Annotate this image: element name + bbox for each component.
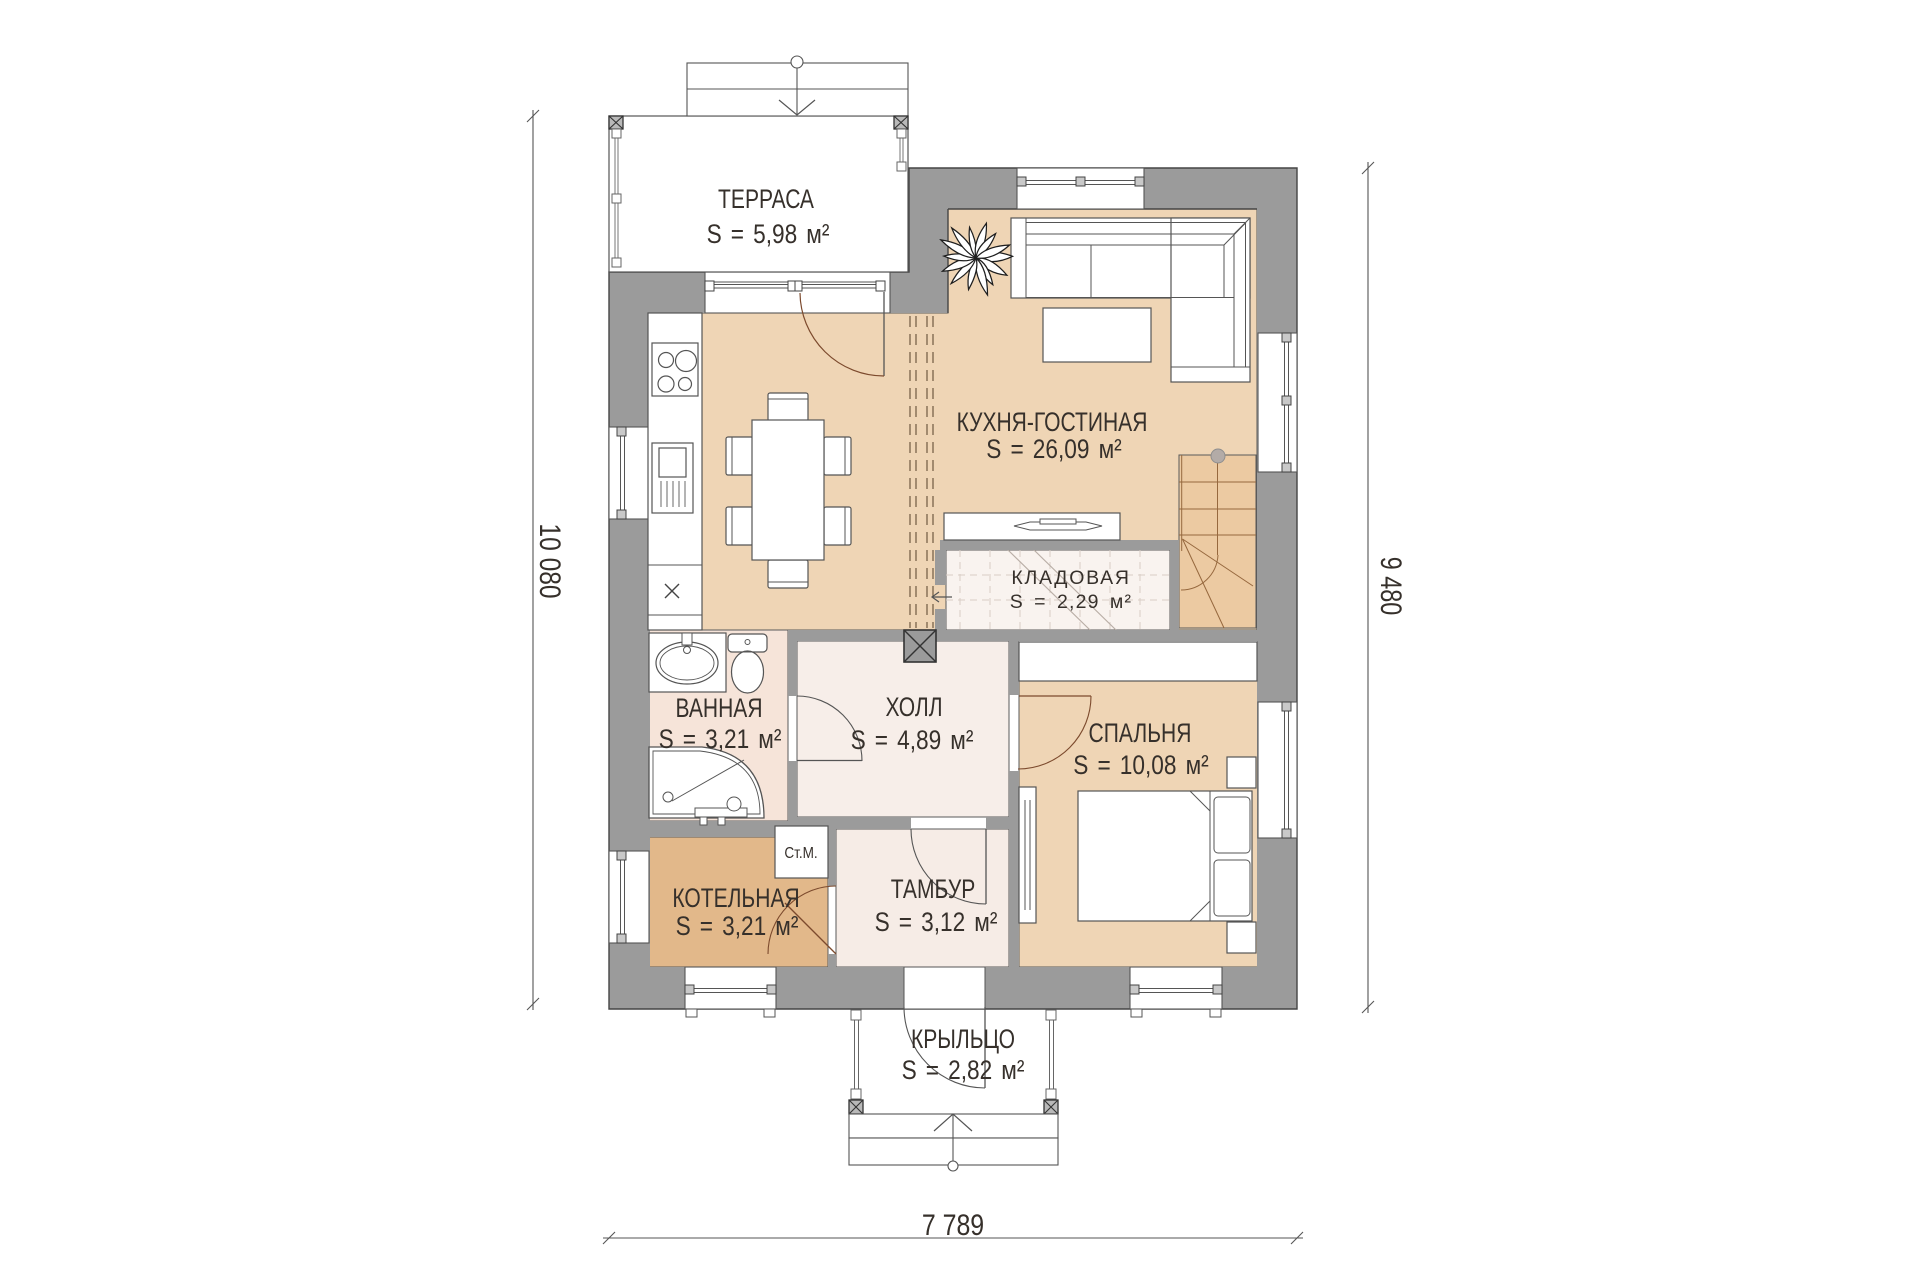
svg-text:S = 2,29 м²: S = 2,29 м² <box>1010 591 1132 613</box>
svg-text:7 789: 7 789 <box>922 1208 984 1242</box>
svg-text:9 480: 9 480 <box>1374 557 1407 616</box>
svg-text:КРЫЛЬЦО: КРЫЛЬЦО <box>911 1025 1015 1055</box>
svg-text:ТЕРРАСА: ТЕРРАСА <box>718 185 815 215</box>
svg-text:S = 2,82 м²: S = 2,82 м² <box>902 1055 1025 1085</box>
svg-text:S = 3,12 м²: S = 3,12 м² <box>875 907 998 937</box>
svg-text:S = 3,21 м²: S = 3,21 м² <box>659 724 782 754</box>
svg-text:КОТЕЛЬНАЯ: КОТЕЛЬНАЯ <box>672 884 799 914</box>
svg-text:СПАЛЬНЯ: СПАЛЬНЯ <box>1089 719 1192 749</box>
svg-text:ТАМБУР: ТАМБУР <box>891 875 975 905</box>
svg-text:ВАННАЯ: ВАННАЯ <box>675 694 762 724</box>
svg-text:S = 10,08 м²: S = 10,08 м² <box>1073 750 1208 780</box>
svg-text:КЛАДОВАЯ: КЛАДОВАЯ <box>1011 567 1130 589</box>
svg-text:КУХНЯ-ГОСТИНАЯ: КУХНЯ-ГОСТИНАЯ <box>957 408 1148 438</box>
svg-text:ХОЛЛ: ХОЛЛ <box>885 693 942 723</box>
svg-text:S = 5,98 м²: S = 5,98 м² <box>707 219 830 249</box>
svg-text:S = 26,09 м²: S = 26,09 м² <box>986 434 1121 464</box>
svg-text:10 080: 10 080 <box>533 523 567 598</box>
svg-text:S = 4,89 м²: S = 4,89 м² <box>851 725 974 755</box>
svg-text:S = 3,21 м²: S = 3,21 м² <box>676 911 799 941</box>
svg-text:Ст.М.: Ст.М. <box>784 845 817 862</box>
